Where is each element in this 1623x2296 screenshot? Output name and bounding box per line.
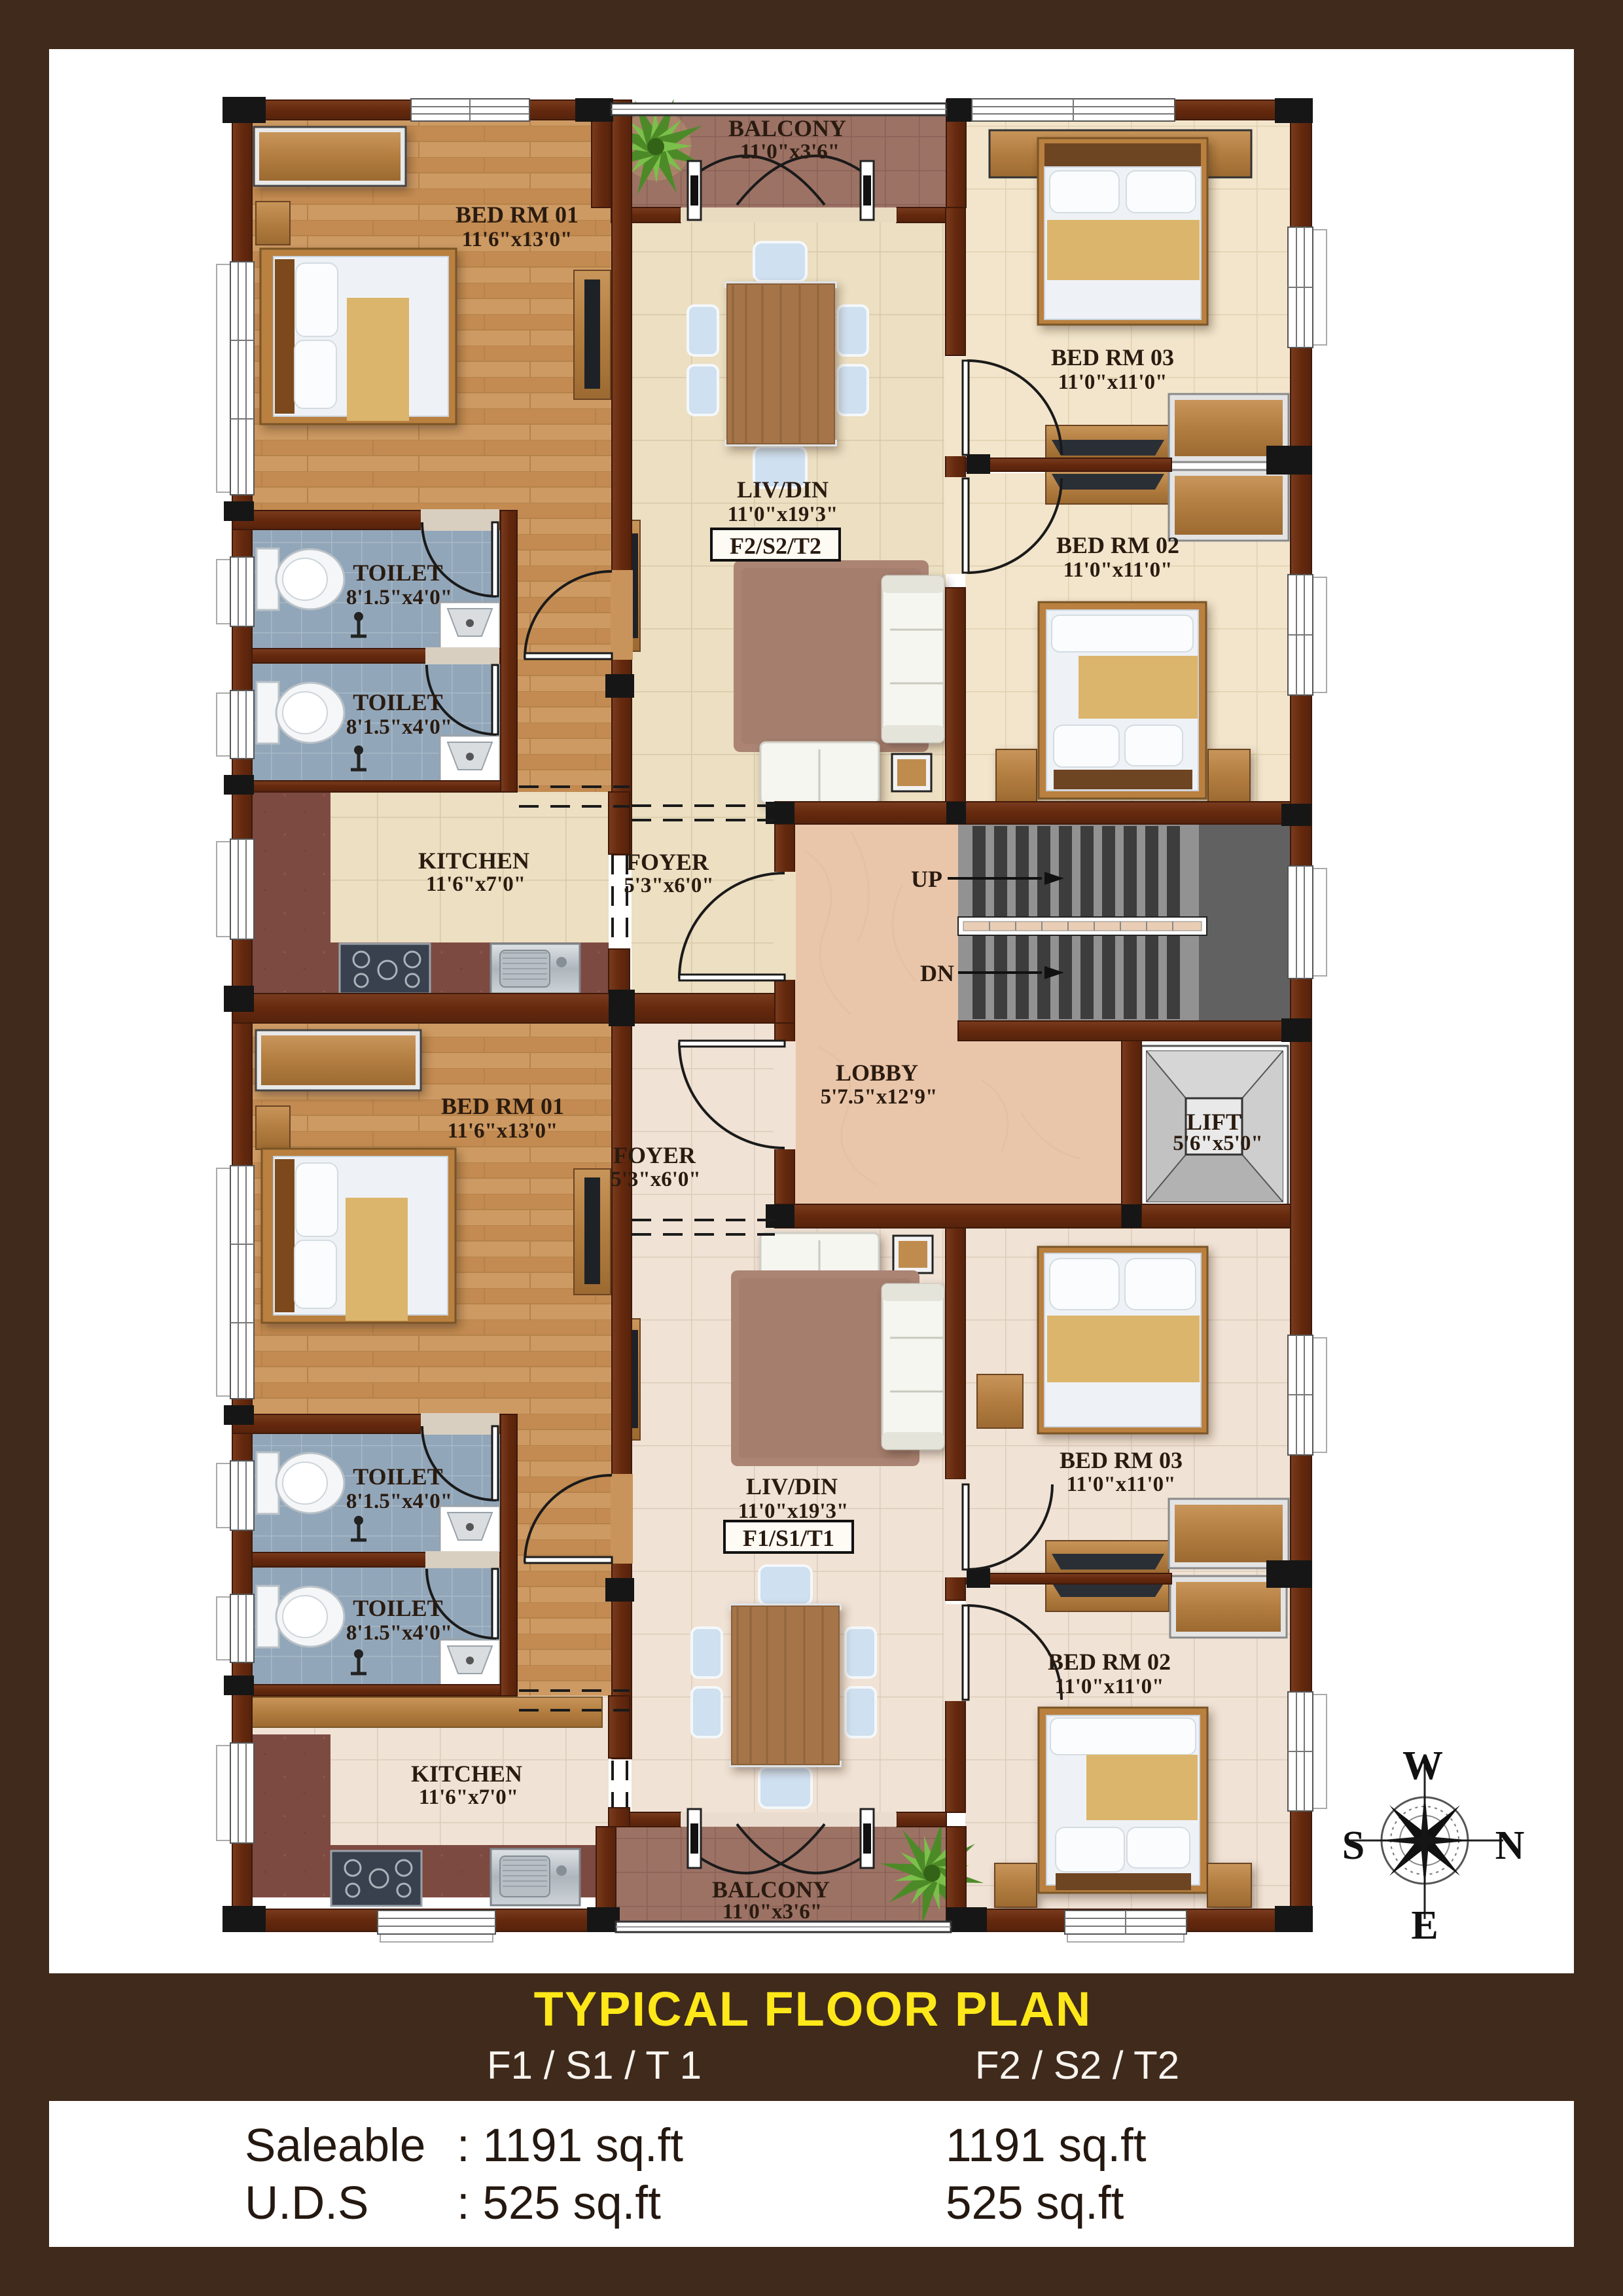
svg-text:BED RM 02: BED RM 02 bbox=[1048, 1649, 1171, 1675]
svg-text:KITCHEN: KITCHEN bbox=[411, 1761, 522, 1787]
svg-text:: 525 sq.ft: : 525 sq.ft bbox=[457, 2178, 661, 2229]
svg-text:11'6"x7'0": 11'6"x7'0" bbox=[426, 872, 526, 896]
svg-text:5'3"x6'0": 5'3"x6'0" bbox=[624, 874, 713, 897]
svg-text:TOILET: TOILET bbox=[353, 1595, 442, 1621]
svg-text:LOBBY: LOBBY bbox=[836, 1060, 918, 1086]
svg-text:E: E bbox=[1411, 1903, 1438, 1948]
svg-text:1191 sq.ft: 1191 sq.ft bbox=[946, 2120, 1147, 2172]
svg-text:BED RM 01: BED RM 01 bbox=[441, 1093, 564, 1119]
svg-text:8'1.5"x4'0": 8'1.5"x4'0" bbox=[346, 715, 452, 739]
svg-text:Saleable: Saleable bbox=[245, 2120, 425, 2172]
svg-text:LIV/DIN: LIV/DIN bbox=[746, 1473, 838, 1499]
svg-text:W: W bbox=[1402, 1744, 1443, 1788]
svg-text:F2/S2/T2: F2/S2/T2 bbox=[730, 533, 821, 559]
svg-text:FOYER: FOYER bbox=[613, 1142, 696, 1168]
svg-text:11'0"x3'6": 11'0"x3'6" bbox=[740, 140, 840, 164]
svg-text:BALCONY: BALCONY bbox=[712, 1876, 830, 1903]
svg-text:5'3"x6'0": 5'3"x6'0" bbox=[611, 1168, 700, 1191]
svg-text:BED RM 01: BED RM 01 bbox=[455, 202, 579, 228]
svg-text:UP: UP bbox=[911, 866, 942, 892]
svg-text:BALCONY: BALCONY bbox=[728, 115, 846, 141]
svg-text:11'0"x11'0": 11'0"x11'0" bbox=[1058, 370, 1168, 394]
svg-text:TOILET: TOILET bbox=[353, 560, 442, 586]
svg-text:S: S bbox=[1342, 1823, 1364, 1868]
svg-text:: 1191 sq.ft: : 1191 sq.ft bbox=[457, 2120, 683, 2172]
svg-text:11'0"x19'3": 11'0"x19'3" bbox=[728, 503, 838, 526]
svg-text:DN: DN bbox=[920, 960, 954, 986]
svg-text:8'1.5"x4'0": 8'1.5"x4'0" bbox=[346, 1490, 452, 1513]
svg-text:TOILET: TOILET bbox=[353, 689, 442, 715]
svg-text:FOYER: FOYER bbox=[626, 849, 709, 875]
svg-text:8'1.5"x4'0": 8'1.5"x4'0" bbox=[346, 1621, 452, 1645]
svg-text:11'6"x13'0": 11'6"x13'0" bbox=[462, 228, 573, 251]
svg-text:11'6"x7'0": 11'6"x7'0" bbox=[419, 1785, 518, 1809]
svg-text:KITCHEN: KITCHEN bbox=[418, 848, 529, 874]
svg-text:BED RM 02: BED RM 02 bbox=[1056, 532, 1179, 558]
svg-text:11'0"x3'6": 11'0"x3'6" bbox=[722, 1900, 822, 1924]
svg-text:11'0"x11'0": 11'0"x11'0" bbox=[1055, 1675, 1164, 1698]
svg-text:11'6"x13'0": 11'6"x13'0" bbox=[448, 1119, 558, 1143]
svg-text:LIV/DIN: LIV/DIN bbox=[737, 476, 829, 503]
svg-text:F2 / S2 / T2: F2 / S2 / T2 bbox=[975, 2043, 1179, 2087]
svg-text:TOILET: TOILET bbox=[353, 1463, 442, 1490]
svg-text:U.D.S: U.D.S bbox=[245, 2178, 368, 2229]
svg-text:11'0"x19'3": 11'0"x19'3" bbox=[738, 1499, 849, 1523]
svg-text:11'0"x11'0": 11'0"x11'0" bbox=[1063, 558, 1173, 582]
svg-text:525 sq.ft: 525 sq.ft bbox=[946, 2178, 1124, 2229]
svg-text:TYPICAL FLOOR PLAN: TYPICAL FLOOR PLAN bbox=[534, 1982, 1092, 2036]
svg-text:5'7.5"x12'9": 5'7.5"x12'9" bbox=[821, 1085, 938, 1109]
svg-text:F1/S1/T1: F1/S1/T1 bbox=[743, 1525, 834, 1551]
svg-text:BED RM 03: BED RM 03 bbox=[1051, 344, 1174, 370]
svg-text:8'1.5"x4'0": 8'1.5"x4'0" bbox=[346, 586, 452, 609]
svg-text:BED RM 03: BED RM 03 bbox=[1060, 1447, 1183, 1473]
svg-text:F1 / S1 / T 1: F1 / S1 / T 1 bbox=[487, 2043, 702, 2087]
svg-text:N: N bbox=[1495, 1823, 1525, 1868]
svg-text:5'6"x5'0": 5'6"x5'0" bbox=[1173, 1132, 1262, 1155]
svg-text:LIFT: LIFT bbox=[1186, 1109, 1241, 1135]
svg-text:11'0"x11'0": 11'0"x11'0" bbox=[1067, 1473, 1176, 1496]
